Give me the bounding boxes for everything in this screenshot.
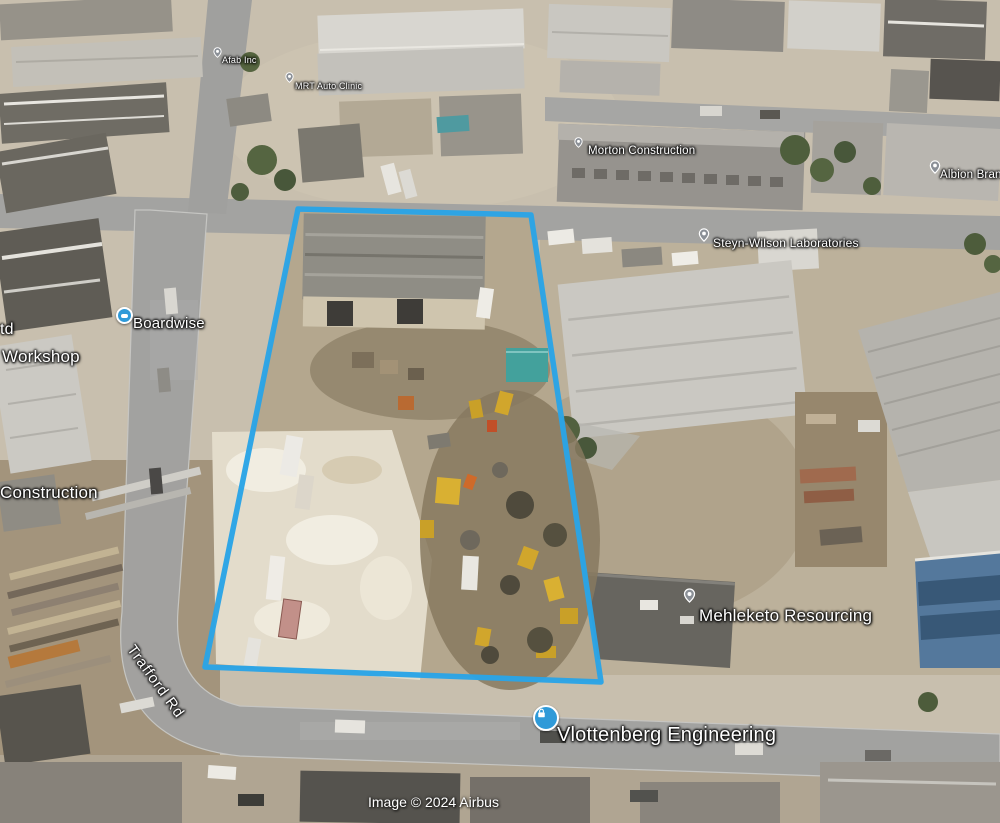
place-label-text: Workshop [2, 347, 80, 366]
place-label-steyn-wilson[interactable]: Steyn-Wilson Laboratories [713, 237, 859, 250]
place-label-ltd[interactable]: td [0, 321, 14, 339]
place-label-albion[interactable]: Albion Brands [940, 169, 1000, 182]
place-label-afab[interactable]: Afab Inc [222, 56, 257, 66]
place-label-morton[interactable]: Morton Construction [588, 145, 695, 158]
map-pin-icon[interactable] [284, 70, 295, 81]
place-label-text: Construction [0, 483, 98, 502]
boardwise-business-icon[interactable] [116, 307, 133, 324]
map-pin-icon[interactable] [682, 588, 696, 602]
imagery-attribution: Image © 2024 Airbus [368, 794, 499, 810]
board-icon [121, 314, 128, 318]
place-label-text: Boardwise [133, 315, 205, 332]
place-label-mehleketo[interactable]: Mehleketo Resourcing [699, 607, 872, 626]
place-label-vlottenberg[interactable]: Vlottenberg Engineering [557, 724, 776, 746]
place-label-text: MRT Auto Clinic [295, 81, 362, 91]
place-label-text: Vlottenberg Engineering [557, 724, 776, 746]
place-label-text: Steyn-Wilson Laboratories [713, 236, 859, 250]
place-label-text: Mehleketo Resourcing [699, 606, 872, 625]
lock-icon [535, 707, 548, 720]
place-label-boardwise[interactable]: Boardwise [133, 316, 205, 333]
satellite-imagery [0, 0, 1000, 823]
place-label-workshop[interactable]: Workshop [2, 348, 80, 367]
map-pin-icon[interactable] [697, 228, 711, 242]
place-label-text: Albion Brands [940, 169, 1000, 181]
place-label-text: Afab Inc [222, 55, 257, 65]
place-label-text: Morton Construction [588, 145, 695, 157]
aerial-map-view[interactable]: td Workshop Boardwise Construction Afab … [0, 0, 1000, 823]
attribution-text: Image © 2024 Airbus [368, 794, 499, 810]
map-pin-icon[interactable] [573, 135, 584, 146]
place-label-mrt-auto[interactable]: MRT Auto Clinic [295, 82, 362, 92]
place-label-text: td [0, 321, 14, 338]
vlottenberg-business-icon[interactable] [533, 705, 559, 731]
rubble-yard [795, 392, 887, 567]
place-label-construction[interactable]: Construction [0, 484, 98, 503]
